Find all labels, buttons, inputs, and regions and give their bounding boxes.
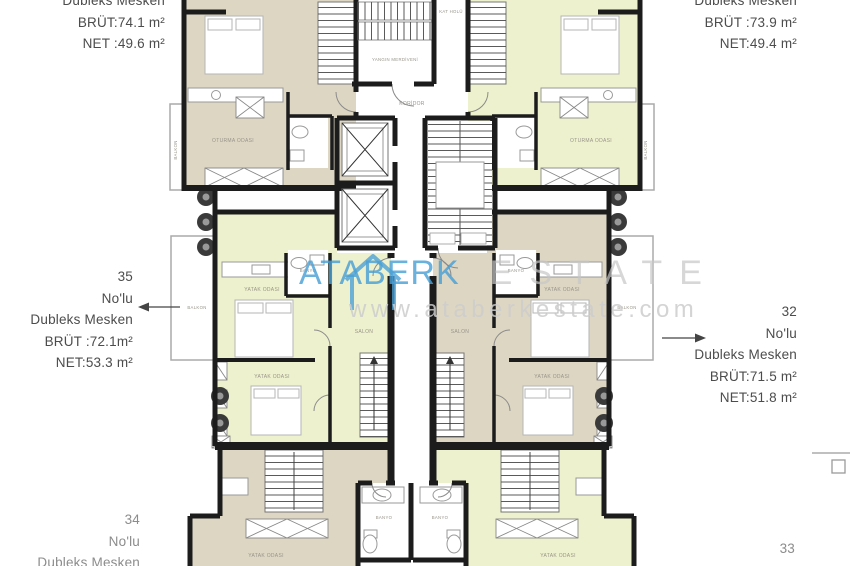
- svg-text:YANGIN MERDİVENİ: YANGIN MERDİVENİ: [372, 57, 418, 62]
- unit-label-top-left: Dubleks Mesken BRÜT:74.1 m² NET :49.6 m²: [62, 0, 165, 55]
- unit-type: Dubleks Mesken: [30, 309, 133, 331]
- unit-type: Dubleks Mesken: [694, 0, 797, 12]
- svg-text:KORİDOR: KORİDOR: [399, 100, 425, 107]
- watermark-brand-name: ATABERK: [299, 254, 460, 292]
- svg-text:SALON: SALON: [355, 329, 374, 335]
- unit-brut-area: BRÜT:71.5 m²: [694, 366, 797, 388]
- section-marker: [812, 453, 850, 473]
- unit-label-33: 33: [780, 538, 795, 560]
- unit-nolu: No'lu: [30, 288, 133, 310]
- svg-text:BALKON: BALKON: [173, 140, 178, 159]
- svg-text:SALON: SALON: [451, 329, 470, 335]
- svg-text:YATAK ODASI: YATAK ODASI: [540, 553, 576, 559]
- unit-type: Dubleks Mesken: [62, 0, 165, 12]
- unit-number: 34: [37, 509, 140, 531]
- fire-staircase: [358, 2, 432, 40]
- svg-text:BALKON: BALKON: [643, 140, 648, 159]
- svg-text:BALKON: BALKON: [187, 305, 206, 310]
- svg-text:BANYO: BANYO: [432, 515, 449, 520]
- unit-number: 32: [694, 301, 797, 323]
- unit-net-area: NET :49.6 m²: [62, 33, 165, 55]
- svg-text:KAT HOLÜ: KAT HOLÜ: [439, 9, 463, 14]
- unit-number: 33: [780, 538, 795, 560]
- unit-label-34: 34 No'lu Dubleks Mesken: [37, 509, 140, 566]
- unit-type: Dubleks Mesken: [694, 344, 797, 366]
- main-staircase: [428, 121, 492, 245]
- unit-nolu: No'lu: [694, 323, 797, 345]
- unit-label-32: 32 No'lu Dubleks Mesken BRÜT:71.5 m² NET…: [694, 301, 797, 409]
- unit-net-area: NET:49.4 m²: [694, 33, 797, 55]
- floor-plan-page: OTURMA ODASI OTURMA ODASI YATAK ODASI YA…: [0, 0, 850, 566]
- unit-brut-area: BRÜT :73.9 m²: [694, 12, 797, 34]
- unit-number: 35: [30, 266, 133, 288]
- unit-nolu: No'lu: [37, 531, 140, 553]
- unit-label-top-right: Dubleks Mesken BRÜT :73.9 m² NET:49.4 m²: [694, 0, 797, 55]
- svg-text:OTURMA ODASI: OTURMA ODASI: [212, 138, 254, 144]
- svg-text:YATAK ODASI: YATAK ODASI: [248, 553, 284, 559]
- watermark-brand: ATABERKESTATE: [299, 255, 719, 291]
- unit-type: Dubleks Mesken: [37, 552, 140, 566]
- unit-net-area: NET:53.3 m²: [30, 352, 133, 374]
- unit-brut-area: BRÜT:74.1 m²: [62, 12, 165, 34]
- unit-label-35: 35 No'lu Dubleks Mesken BRÜT :72.1m² NET…: [30, 266, 133, 374]
- svg-text:YATAK ODASI: YATAK ODASI: [244, 287, 280, 293]
- svg-text:BANYO: BANYO: [376, 515, 393, 520]
- svg-text:YATAK ODASI: YATAK ODASI: [254, 374, 290, 380]
- svg-text:YATAK ODASI: YATAK ODASI: [534, 374, 570, 380]
- watermark-brand-suffix: ESTATE: [490, 254, 719, 292]
- watermark-url: www.ataberkestate.com: [349, 296, 698, 324]
- svg-text:OTURMA ODASI: OTURMA ODASI: [570, 138, 612, 144]
- unit-net-area: NET:51.8 m²: [694, 387, 797, 409]
- unit-brut-area: BRÜT :72.1m²: [30, 331, 133, 353]
